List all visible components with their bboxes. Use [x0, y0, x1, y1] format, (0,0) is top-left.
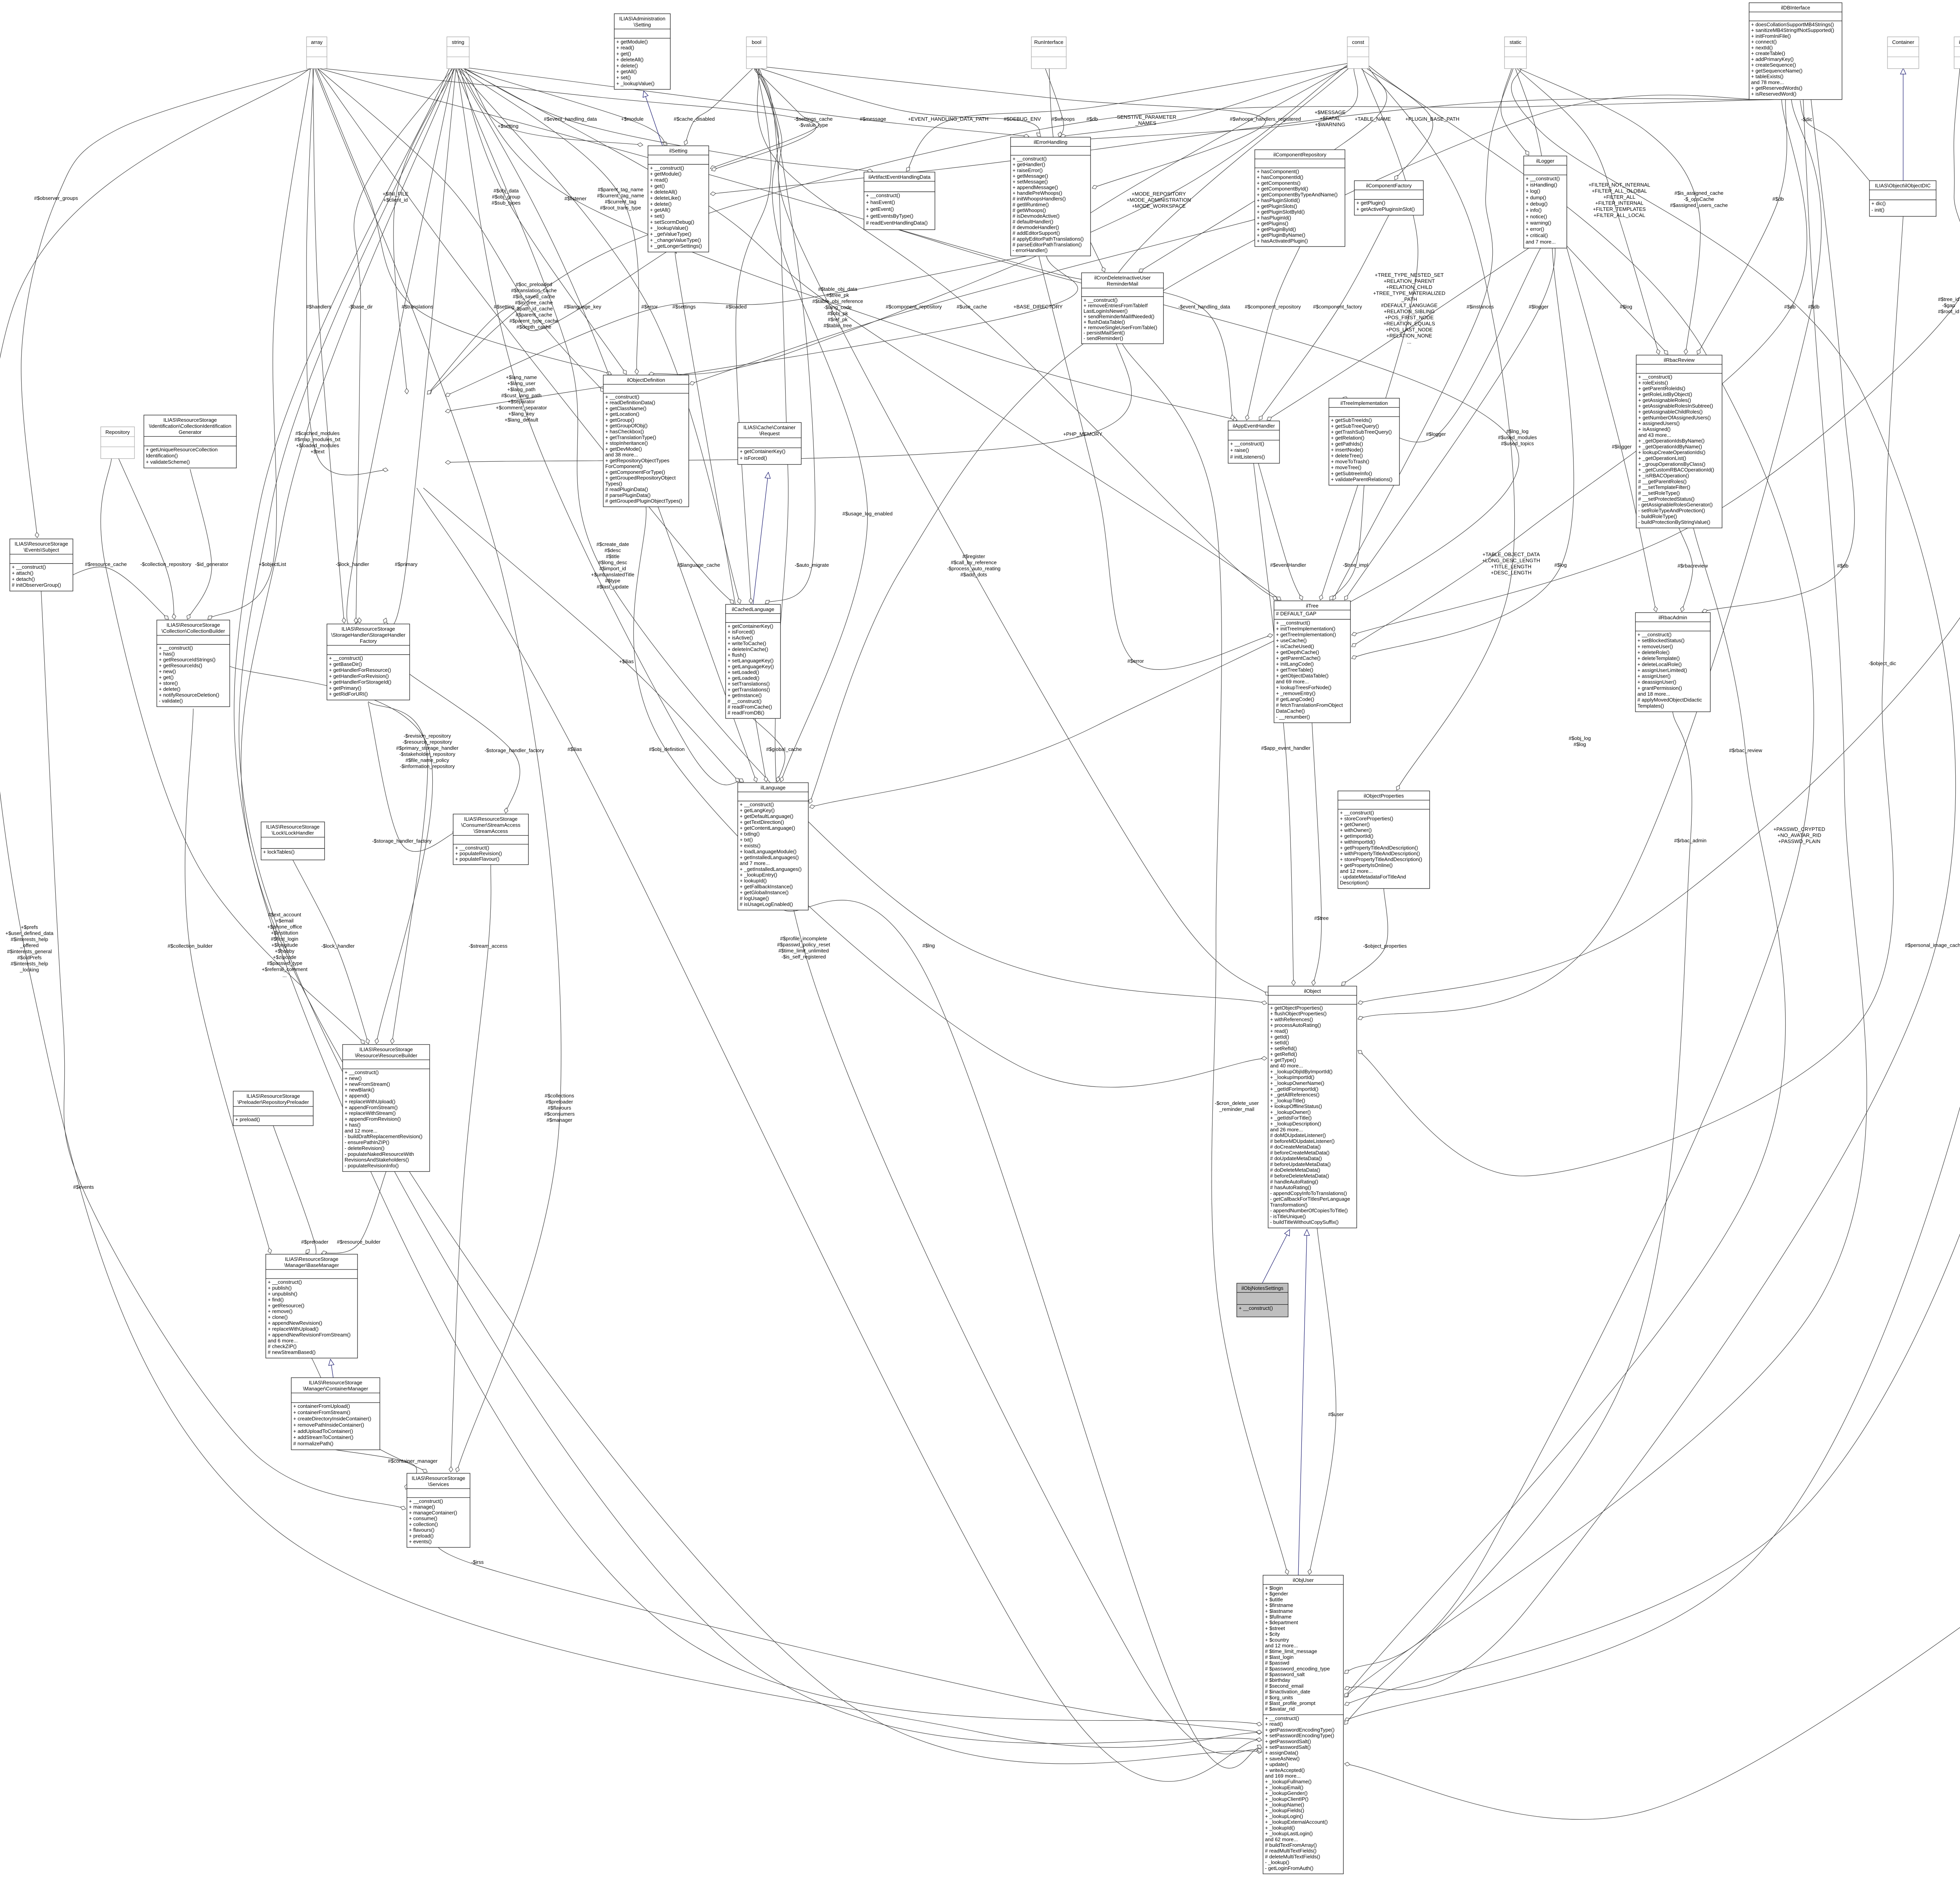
svg-text:+ createTable(): + createTable()	[1751, 51, 1785, 56]
svg-text:+ validateParentRelations(): + validateParentRelations()	[1331, 476, 1392, 482]
svg-text:+ lookupCreateOperationIds(): + lookupCreateOperationIds()	[1638, 450, 1706, 455]
svg-text:+ handlePreWhoops(): + handlePreWhoops()	[1013, 190, 1062, 196]
svg-text:+ read(): + read()	[1265, 1721, 1283, 1727]
svg-text:+ isActive(): + isActive()	[728, 635, 753, 640]
svg-text:+PLUGIN_BASE_PATH: +PLUGIN_BASE_PATH	[1405, 116, 1459, 122]
svg-text:+$zipcode: +$zipcode	[273, 954, 296, 960]
svg-text:+RELATION_SIBLING: +RELATION_SIBLING	[1384, 308, 1435, 314]
svg-text:+$hobby: +$hobby	[275, 948, 295, 954]
svg-text:- persistMailSent(): - persistMailSent()	[1083, 330, 1125, 336]
svg-text:string: string	[452, 39, 465, 45]
svg-text:and 12 more...: and 12 more...	[1340, 868, 1373, 874]
svg-text:+ getTreeImplementation(): + getTreeImplementation()	[1276, 632, 1336, 638]
svg-text:+ getTranslationType(): + getTranslationType()	[605, 434, 656, 440]
svg-text:+$lang_path: +$lang_path	[507, 386, 535, 392]
svg-text:+$comment_separator: +$comment_separator	[496, 405, 547, 411]
svg-text:and 6 more...: and 6 more...	[268, 1338, 298, 1344]
svg-text:- buildRoleType(): - buildRoleType()	[1638, 513, 1677, 519]
svg-text:- getCallbackForTitlesPerLangu: - getCallbackForTitlesPerLanguage	[1270, 1196, 1350, 1202]
svg-text:+ getMessage(): + getMessage()	[1013, 173, 1048, 179]
svg-text:Repository: Repository	[105, 429, 130, 435]
svg-text:+ deleteAll(): + deleteAll()	[650, 189, 677, 195]
svg-text:+ setTranslations(): + setTranslations()	[728, 681, 770, 687]
svg-text:+$MESSAGE: +$MESSAGE	[1314, 109, 1345, 115]
svg-text:+ _groupOperationsByClass(): + _groupOperationsByClass()	[1638, 461, 1706, 467]
svg-text:#$language_key: #$language_key	[564, 304, 601, 310]
svg-text:+FILTER_ALL: +FILTER_ALL	[1603, 194, 1635, 200]
svg-text:+ _getValueType(): + _getValueType()	[650, 231, 691, 237]
svg-text:- appendNumberOfCopiesToTitle(: - appendNumberOfCopiesToTitle()	[1270, 1208, 1348, 1213]
svg-text:+ getTranslations(): + getTranslations()	[728, 687, 770, 693]
svg-text:#$logger: #$logger	[1426, 431, 1446, 437]
svg-text:static: static	[1510, 39, 1522, 45]
svg-text:+ __construct(): + __construct()	[1526, 176, 1560, 181]
svg-text:#$ref_pk: #$ref_pk	[828, 317, 848, 323]
svg-text:+ __construct(): + __construct()	[740, 802, 774, 807]
svg-text:+ getContainerKey(): + getContainerKey()	[740, 448, 786, 454]
svg-text:ILIAS\ResourceStorage: ILIAS\ResourceStorage	[285, 1256, 339, 1262]
svg-text:+ $firstname: + $firstname	[1265, 1602, 1293, 1608]
svg-text:ILIAS\ResourceStorage: ILIAS\ResourceStorage	[266, 824, 320, 830]
svg-text:+TREE_TYPE_NESTED_SET: +TREE_TYPE_NESTED_SET	[1375, 272, 1444, 278]
svg-text:+ __construct(): + __construct()	[1083, 297, 1118, 303]
svg-text:#$loaded: #$loaded	[726, 304, 747, 310]
svg-text:+ getPlugins(): + getPlugins()	[1257, 221, 1289, 227]
svg-text:-$_opsCache: -$_opsCache	[1684, 196, 1714, 202]
svg-text:+ getLanguageKey(): + getLanguageKey()	[728, 664, 774, 669]
svg-text:+ getTrashSubTreeQuery(): + getTrashSubTreeQuery()	[1331, 429, 1392, 435]
svg-text:+ hasComponent(): + hasComponent()	[1257, 169, 1299, 174]
svg-text:+ txt(): + txt()	[740, 837, 753, 843]
svg-text:#$message: #$message	[860, 116, 886, 122]
svg-text:+ __construct(): + __construct()	[650, 165, 684, 171]
svg-text:and 7 more...: and 7 more...	[1526, 239, 1556, 245]
svg-text:#$logger: #$logger	[1612, 444, 1632, 450]
svg-text:+ deleteTree(): + deleteTree()	[1331, 453, 1363, 459]
svg-text:#$is_saved_cache: #$is_saved_cache	[513, 294, 555, 299]
svg-text:#$import_id: #$import_id	[599, 566, 626, 571]
svg-text:# getWhoops(): # getWhoops()	[1013, 207, 1046, 213]
svg-text:#$component_factory: #$component_factory	[1313, 304, 1362, 310]
svg-text:+ _lookupName(): + _lookupName()	[1265, 1802, 1304, 1808]
svg-text:-$id_generator: -$id_generator	[195, 561, 229, 567]
svg-text:+ read(): + read()	[616, 45, 634, 51]
svg-text:RunInterface: RunInterface	[1034, 39, 1063, 45]
svg-text:# parsePluginData(): # parsePluginData()	[605, 492, 651, 498]
svg-text:+ store(): + store()	[159, 680, 178, 686]
svg-text:ilCronDeleteInactiveUser: ilCronDeleteInactiveUser	[1094, 275, 1151, 281]
svg-text:#$table_tree: #$table_tree	[824, 323, 852, 328]
svg-text:+$lang_key: +$lang_key	[508, 411, 535, 417]
svg-text:ilCachedLanguage: ilCachedLanguage	[732, 606, 774, 612]
svg-text:+RELATION_PARENT: +RELATION_PARENT	[1384, 278, 1435, 284]
svg-text:LastLoginIsNewer(): LastLoginIsNewer()	[1083, 308, 1128, 314]
svg-text:# beforeDeleteMetaData(): # beforeDeleteMetaData()	[1270, 1173, 1329, 1179]
svg-text:+ __construct(): + __construct()	[866, 192, 900, 198]
svg-text:+ new(): + new()	[159, 669, 176, 675]
svg-text:#$used_modules: #$used_modules	[1498, 435, 1537, 441]
svg-text:+ deleteLike(): + deleteLike()	[650, 195, 681, 201]
svg-text:+$longitude: +$longitude	[271, 942, 298, 948]
svg-text:+TABLE_OBJECT_DATA: +TABLE_OBJECT_DATA	[1483, 551, 1540, 557]
svg-text:-$lock_handler: -$lock_handler	[336, 561, 369, 567]
svg-text:+ getSubtreeInfo(): + getSubtreeInfo()	[1331, 470, 1372, 476]
svg-text:+ _lookupEntry(): + _lookupEntry()	[740, 872, 777, 878]
svg-text:+ $street: + $street	[1265, 1625, 1285, 1631]
svg-text:+ notice(): + notice()	[1526, 214, 1547, 219]
svg-text:- getAssignableRolesGenerator(: - getAssignableRolesGenerator()	[1638, 502, 1713, 508]
svg-text:+ getRelation(): + getRelation()	[1331, 435, 1365, 441]
svg-text:+FILTER_INTERNAL: +FILTER_INTERNAL	[1595, 200, 1644, 206]
svg-text:#$rbac_admin: #$rbac_admin	[1674, 838, 1706, 843]
svg-text:- appendCopyInfoToTranslations: - appendCopyInfoToTranslations()	[1270, 1190, 1347, 1196]
svg-text:+ getHandlerForStorageId(): + getHandlerForStorageId()	[329, 679, 391, 685]
svg-text:+ getRidForURI(): + getRidForURI()	[329, 691, 368, 697]
svg-text:+ __construct(): + __construct()	[409, 1498, 443, 1504]
svg-text:+ _lookupOwnerName(): + _lookupOwnerName()	[1270, 1080, 1324, 1086]
svg-text:+ removePathInsideContainer(): + removePathInsideContainer()	[293, 1422, 364, 1428]
svg-text:#$parent_tag_name: #$parent_tag_name	[598, 187, 643, 192]
svg-text:#$cached_modules: #$cached_modules	[296, 430, 340, 436]
svg-text:+ getGroup(): + getGroup()	[605, 417, 634, 423]
svg-text:+ flavours(): + flavours()	[409, 1527, 434, 1533]
svg-text:+ getTreeTable(): + getTreeTable()	[1276, 667, 1313, 673]
svg-text:#$file_name_policy: #$file_name_policy	[405, 757, 449, 763]
svg-text:# doCreateMetaData(): # doCreateMetaData()	[1270, 1144, 1321, 1150]
svg-text:Identification(): Identification()	[146, 453, 178, 459]
svg-text:+ getParentRoleIds(): + getParentRoleIds()	[1638, 386, 1685, 392]
svg-text:+ getDevMode(): + getDevMode()	[605, 446, 642, 452]
svg-text:#$obj_log: #$obj_log	[1569, 735, 1591, 741]
svg-text:# buildTextFromArray(): # buildTextFromArray()	[1265, 1842, 1317, 1848]
svg-text:+ getUniqueResourceCollection: + getUniqueResourceCollection	[146, 446, 218, 452]
svg-text:+ populateFlavour(): + populateFlavour()	[455, 856, 499, 862]
svg-text:# isUsageLogEnabled(): # isUsageLogEnabled()	[740, 901, 793, 907]
svg-text:+ getComponentByTypeAndName(): + getComponentByTypeAndName()	[1257, 192, 1338, 198]
svg-text:+ getObjectProperties(): + getObjectProperties()	[1270, 1005, 1323, 1011]
svg-text:#$interests_general: #$interests_general	[7, 948, 52, 954]
svg-text:#$in_tree_cache: #$in_tree_cache	[515, 300, 553, 306]
svg-text:\Request: \Request	[759, 431, 780, 437]
svg-text:+ getPropertyTitleAndDescripti: + getPropertyTitleAndDescription()	[1340, 845, 1418, 851]
svg-text:+ publish(): + publish()	[268, 1285, 292, 1291]
svg-text:+ lookupOfflineStatus(): + lookupOfflineStatus()	[1270, 1103, 1322, 1109]
svg-text:#$map_modules_txt: #$map_modules_txt	[294, 437, 340, 443]
svg-text:+ setBlockedStatus(): + setBlockedStatus()	[1637, 638, 1684, 644]
svg-text:+ getPropertyIsOnline(): + getPropertyIsOnline()	[1340, 862, 1393, 868]
svg-text:#$resource_builder: #$resource_builder	[337, 1239, 381, 1245]
svg-text:+ lockTables(): + lockTables()	[263, 849, 295, 855]
svg-text:+ __construct(): + __construct()	[1013, 156, 1047, 162]
svg-text:#$table_obj_reference: #$table_obj_reference	[812, 298, 863, 304]
svg-text:+$referral_comment: +$referral_comment	[262, 967, 308, 972]
svg-text:- sendReminder(): - sendReminder()	[1083, 336, 1123, 341]
svg-text:# __construct(): # __construct()	[728, 698, 762, 704]
svg-text:+ getComponents(): + getComponents()	[1257, 180, 1301, 186]
svg-text:# $password_salt: # $password_salt	[1265, 1672, 1305, 1678]
svg-text:ilObjUser: ilObjUser	[1293, 1577, 1314, 1583]
svg-text:#$translation_cache: #$translation_cache	[511, 288, 557, 294]
svg-text:+ clone(): + clone()	[268, 1314, 288, 1320]
svg-text:# addEditorSupport(): # addEditorSupport()	[1013, 230, 1060, 236]
svg-text:#$cache_disabled: #$cache_disabled	[674, 116, 715, 122]
svg-text:#$db: #$db	[1837, 563, 1849, 569]
svg-text:ilLogger: ilLogger	[1536, 158, 1555, 164]
svg-text:#$passwd_type: #$passwd_type	[267, 960, 302, 966]
svg-text:+ assignedUsers(): + assignedUsers()	[1638, 421, 1680, 426]
svg-text:#$language_cache: #$language_cache	[677, 562, 720, 568]
svg-text:+ getImportId(): + getImportId()	[1340, 833, 1374, 839]
svg-text:+ __construct(): + __construct()	[605, 394, 639, 400]
svg-text:+ __construct(): + __construct()	[159, 645, 193, 651]
svg-text:\Manager\BaseManager: \Manager\BaseManager	[284, 1262, 339, 1268]
svg-text:+ __construct(): + __construct()	[329, 655, 363, 661]
svg-text:#$error: #$error	[641, 304, 658, 310]
svg-text:+PASSWD_CRYPTED: +PASSWD_CRYPTED	[1773, 826, 1825, 832]
svg-text:#$sub_types: #$sub_types	[492, 200, 521, 206]
svg-text:+TREE_TYPE_MATERIALIZED: +TREE_TYPE_MATERIALIZED	[1373, 290, 1445, 296]
svg-text:+ sendReminderMailIfNeeded(): + sendReminderMailIfNeeded()	[1083, 314, 1154, 319]
svg-text:+ createSequence(): + createSequence()	[1751, 62, 1796, 68]
svg-text:+$setting: +$setting	[497, 123, 518, 129]
svg-text:+$objectList: +$objectList	[259, 561, 286, 567]
svg-text:#$component_repository: #$component_repository	[1245, 304, 1301, 310]
svg-text:+ setLoaded(): + setLoaded()	[728, 669, 759, 675]
svg-text:+ replaceWithUpload(): + replaceWithUpload()	[345, 1099, 396, 1104]
svg-text:+ appendNewRevision(): + appendNewRevision()	[268, 1320, 322, 1326]
svg-text:ILIAS\ResourceStorage: ILIAS\ResourceStorage	[15, 541, 68, 547]
svg-text:+ _lookupFullname(): + _lookupFullname()	[1265, 1779, 1312, 1785]
svg-text:+ getEvent(): + getEvent()	[866, 206, 894, 212]
svg-text:#$ilias: #$ilias	[568, 746, 582, 752]
svg-text:# readFromDB(): # readFromDB()	[728, 710, 764, 716]
svg-text:#$call_by_reference: #$call_by_reference	[951, 560, 996, 566]
svg-text:+$separator: +$separator	[508, 399, 535, 404]
svg-text:+ appendNewRevisionFromStream(: + appendNewRevisionFromStream()	[268, 1332, 350, 1338]
svg-text:+$FATAL: +$FATAL	[1320, 116, 1341, 122]
svg-text:+ remove(): + remove()	[268, 1308, 292, 1314]
svg-text:+$INI_FILE: +$INI_FILE	[383, 191, 408, 197]
svg-text:+ get(): + get()	[650, 183, 665, 189]
svg-text:+ set(): + set()	[616, 74, 631, 80]
svg-text:# $time_limit_message: # $time_limit_message	[1265, 1648, 1317, 1654]
svg-text:ILIAS\ResourceStorage: ILIAS\ResourceStorage	[359, 1046, 413, 1052]
svg-text:+ createDirectoryInsideContain: + createDirectoryInsideContainer()	[293, 1416, 371, 1422]
svg-text:#$personal_image_cache: #$personal_image_cache	[1905, 942, 1960, 948]
svg-text:- updateMetadataForTitleAnd: - updateMetadataForTitleAnd	[1340, 874, 1406, 880]
svg-text:ForComponent(): ForComponent()	[605, 463, 642, 469]
svg-text:+ append(): + append()	[345, 1093, 369, 1099]
svg-text:+ set(): + set()	[650, 213, 664, 219]
svg-text:#$eventHandler: #$eventHandler	[1270, 562, 1306, 568]
svg-text:+ withReferences(): + withReferences()	[1270, 1017, 1313, 1023]
svg-text:Templates(): Templates()	[1637, 703, 1664, 709]
svg-text:+TABLE_NAME: +TABLE_NAME	[1355, 116, 1391, 122]
svg-text:+ $gender: + $gender	[1265, 1591, 1289, 1597]
svg-text:-$dic: -$dic	[1801, 116, 1813, 122]
svg-text:+ assignUserLimited(): + assignUserLimited()	[1637, 667, 1687, 673]
svg-text:+ _changeValueType(): + _changeValueType()	[650, 237, 701, 243]
svg-text:\StorageHandler\StorageHandler: \StorageHandler\StorageHandler	[331, 632, 406, 638]
svg-text:+ unpublish(): + unpublish()	[268, 1291, 298, 1297]
svg-text:# __setRoleType(): # __setRoleType()	[1638, 490, 1680, 496]
svg-text:+ removeSingleUserFromTable(): + removeSingleUserFromTable()	[1083, 325, 1157, 330]
svg-text:+$email: +$email	[276, 918, 294, 924]
svg-text:+ _lookupImportId(): + _lookupImportId()	[1270, 1074, 1314, 1080]
svg-text:+$module: +$module	[621, 116, 643, 122]
svg-text:#$rbac_review: #$rbac_review	[1729, 747, 1762, 753]
svg-text:#$global_cache: #$global_cache	[766, 746, 802, 752]
svg-text:+PASSWD_PLAIN: +PASSWD_PLAIN	[1778, 838, 1820, 844]
svg-text:_PATH: _PATH	[1401, 296, 1417, 302]
svg-text:- validate(): - validate()	[159, 698, 183, 704]
svg-text:+ tableExists(): + tableExists()	[1751, 74, 1784, 80]
svg-text:#$logger: #$logger	[1529, 304, 1549, 310]
svg-text:+ debug(): + debug()	[1526, 201, 1548, 207]
svg-text:+ getActivePluginsInSlot(): + getActivePluginsInSlot()	[1356, 206, 1415, 212]
svg-text:- populateRevisionInfo(): - populateRevisionInfo()	[345, 1163, 399, 1169]
svg-text:Description(): Description()	[1340, 880, 1369, 886]
svg-text:+ hasEvent(): + hasEvent()	[866, 199, 895, 205]
svg-text:\Setting: \Setting	[633, 22, 651, 28]
svg-text:#$root_trans_type: #$root_trans_type	[600, 205, 641, 211]
svg-text:#$tree_id: #$tree_id	[1938, 296, 1959, 302]
svg-text:+ appendFromRevision(): + appendFromRevision()	[345, 1116, 401, 1122]
svg-text:# fetchTranslationFromObject: # fetchTranslationFromObject	[1276, 702, 1343, 708]
svg-text:+ setLanguageKey(): + setLanguageKey()	[728, 658, 773, 664]
svg-text:+ getLocation(): + getLocation()	[605, 411, 639, 417]
svg-text:+ addPrimaryKey(): + addPrimaryKey()	[1751, 56, 1794, 62]
svg-text:...: ...	[283, 972, 287, 978]
svg-text:+ flushDataTable(): + flushDataTable()	[1083, 319, 1125, 325]
svg-text:+POS_LAST_NODE: +POS_LAST_NODE	[1386, 327, 1433, 333]
svg-text:-$event_handling_data: -$event_handling_data	[1178, 304, 1230, 310]
svg-text:- ensurePathInZIP(): - ensurePathInZIP()	[345, 1139, 389, 1145]
svg-text:-$storage_handler_factory: -$storage_handler_factory	[372, 838, 432, 844]
svg-text:+ validateScheme(): + validateScheme()	[146, 459, 190, 465]
svg-text:+ txtlng(): + txtlng()	[740, 831, 760, 837]
svg-text:- buildTitleWithoutCopySuffix(: - buildTitleWithoutCopySuffix()	[1270, 1219, 1339, 1225]
svg-text:# doDeleteMetaData(): # doDeleteMetaData()	[1270, 1167, 1320, 1173]
svg-text:_looking: _looking	[20, 967, 39, 973]
svg-text:#$log: #$log	[1554, 562, 1567, 568]
svg-text:+ deleteRole(): + deleteRole()	[1637, 649, 1670, 655]
svg-text:-$base_dir: -$base_dir	[348, 304, 373, 310]
svg-text:-$resource_repository: -$resource_repository	[403, 739, 452, 745]
svg-text:ilObjNotesSettings: ilObjNotesSettings	[1241, 1285, 1283, 1291]
svg-text:#$instances: #$instances	[1466, 304, 1494, 310]
svg-text:ilObjectDefinition: ilObjectDefinition	[627, 377, 665, 383]
svg-text:+ getPrimary(): + getPrimary()	[329, 685, 361, 691]
svg-text:# getIlRuntime(): # getIlRuntime()	[1013, 201, 1049, 207]
svg-text:- __renumber(): - __renumber()	[1276, 714, 1310, 720]
svg-text:-$path_id_cache: -$path_id_cache	[515, 306, 553, 312]
svg-text:+ deleteAll(): + deleteAll()	[616, 57, 644, 63]
svg-text:#$parent_cache: #$parent_cache	[515, 312, 552, 318]
svg-text:and 62 more...: and 62 more...	[1265, 1836, 1298, 1842]
svg-text:+$loaded_modules: +$loaded_modules	[296, 443, 339, 448]
svg-text:+$prefs: +$prefs	[21, 924, 38, 930]
svg-text:+ notifyResourceDeletion(): + notifyResourceDeletion()	[159, 692, 219, 698]
svg-text:#$settings: #$settings	[672, 304, 696, 310]
svg-text:+ setPasswordSalt(): + setPasswordSalt()	[1265, 1744, 1311, 1750]
svg-text:ILIAS\ResourceStorage: ILIAS\ResourceStorage	[341, 626, 395, 632]
svg-text:+ getClassName(): + getClassName()	[605, 405, 646, 411]
svg-text:+ assignUser(): + assignUser()	[1637, 673, 1671, 679]
svg-text:+ appendMessage(): + appendMessage()	[1013, 185, 1058, 190]
svg-text:_reminder_mail: _reminder_mail	[1219, 1106, 1254, 1112]
svg-text:#$tree: #$tree	[1314, 915, 1329, 921]
svg-text:+ _lookupOwner(): + _lookupOwner()	[1270, 1109, 1311, 1115]
svg-text:ILIAS\ResourceStorage: ILIAS\ResourceStorage	[167, 622, 220, 628]
svg-text:+ deleteTemplate(): + deleteTemplate()	[1637, 655, 1680, 661]
svg-text:+$institution: +$institution	[271, 930, 298, 936]
svg-text:Transformation(): Transformation()	[1270, 1202, 1308, 1208]
svg-text:+ withImportId(): + withImportId()	[1340, 839, 1376, 845]
svg-text:+ replaceWithStream(): + replaceWithStream()	[345, 1110, 396, 1116]
svg-text:#$usage_log_enabled: #$usage_log_enabled	[842, 511, 893, 517]
svg-text:Generator: Generator	[179, 429, 202, 435]
svg-text:+ withPropertyTitleAndDescript: + withPropertyTitleAndDescription()	[1340, 851, 1420, 856]
svg-text:#$lng: #$lng	[922, 943, 935, 948]
svg-text:+ getAssignableRolesInSubtree(: + getAssignableRolesInSubtree()	[1638, 403, 1713, 409]
svg-text:+$ilias: +$ilias	[619, 658, 634, 664]
svg-text:ilTreeImplementation: ilTreeImplementation	[1341, 400, 1388, 406]
svg-text:+ containerFromStream(): + containerFromStream()	[293, 1409, 350, 1415]
svg-text:+ events(): + events()	[409, 1539, 432, 1545]
svg-text:+FILTER_NOT_INTERNAL: +FILTER_NOT_INTERNAL	[1588, 182, 1650, 188]
svg-text:+ read(): + read()	[650, 177, 668, 183]
svg-text:and 78 more...: and 78 more...	[1751, 79, 1784, 85]
svg-text:#$last_update: #$last_update	[597, 584, 629, 590]
svg-text:+ dump(): + dump()	[1526, 194, 1546, 200]
svg-text:+ __construct(): + __construct()	[1637, 632, 1671, 638]
svg-text:+ dic(): + dic()	[1871, 200, 1886, 206]
svg-text:+LONG_DESC_LENGTH: +LONG_DESC_LENGTH	[1482, 558, 1540, 564]
svg-text:+ collection(): + collection()	[409, 1522, 438, 1527]
svg-text:# logUsage(): # logUsage()	[740, 896, 769, 901]
svg-text:#$profile_incomplete: #$profile_incomplete	[780, 936, 827, 941]
svg-text:+ _lookupClientIP(): + _lookupClientIP()	[1265, 1796, 1308, 1802]
svg-text:# beforeUpdateMetaData(): # beforeUpdateMetaData()	[1270, 1161, 1331, 1167]
svg-text:#$preloader: #$preloader	[301, 1239, 328, 1245]
svg-text:+ setId(): + setId()	[1270, 1040, 1289, 1046]
svg-text:+ __construct(): + __construct()	[455, 845, 489, 851]
svg-text:#$is_assigned_cache: #$is_assigned_cache	[1674, 190, 1723, 196]
svg-text:_offered: _offered	[20, 943, 38, 948]
svg-text:#$DEBUG_ENV: #$DEBUG_ENV	[1004, 116, 1041, 122]
svg-text:\Consumer\StreamAccess: \Consumer\StreamAccess	[461, 822, 521, 828]
svg-text:# DEFAULT_GAP: # DEFAULT_GAP	[1276, 611, 1316, 617]
svg-text:and 40 more...: and 40 more...	[1270, 1063, 1303, 1069]
svg-text:+ deleteLocalRole(): + deleteLocalRole()	[1637, 661, 1682, 667]
svg-text:+RELATION_NONE: +RELATION_NONE	[1387, 333, 1432, 339]
svg-text:+ _lookupDescription(): + _lookupDescription()	[1270, 1121, 1321, 1127]
svg-text:+ _getIdForImportId(): + _getIdForImportId()	[1270, 1086, 1318, 1092]
svg-text:+ readDefinitionData(): + readDefinitionData()	[605, 400, 655, 406]
svg-text:#$create_date: #$create_date	[596, 541, 629, 547]
svg-text:+ get(): + get()	[616, 51, 631, 56]
svg-text:+ __construct(): + __construct()	[1276, 620, 1310, 626]
svg-text:+ hasComponentId(): + hasComponentId()	[1257, 174, 1303, 180]
svg-text:+ $login: + $login	[1265, 1585, 1283, 1591]
svg-text:+ initFromIniFile(): + initFromIniFile()	[1751, 33, 1791, 39]
svg-text:-$stakeholder_repository: -$stakeholder_repository	[399, 751, 456, 757]
svg-text:-$cron_delete_user: -$cron_delete_user	[1215, 1100, 1259, 1106]
svg-text:+ getOwner(): + getOwner()	[1340, 822, 1370, 827]
svg-text:# $password_encoding_type: # $password_encoding_type	[1265, 1666, 1330, 1672]
svg-text:+ getPluginById(): + getPluginById()	[1257, 226, 1296, 232]
